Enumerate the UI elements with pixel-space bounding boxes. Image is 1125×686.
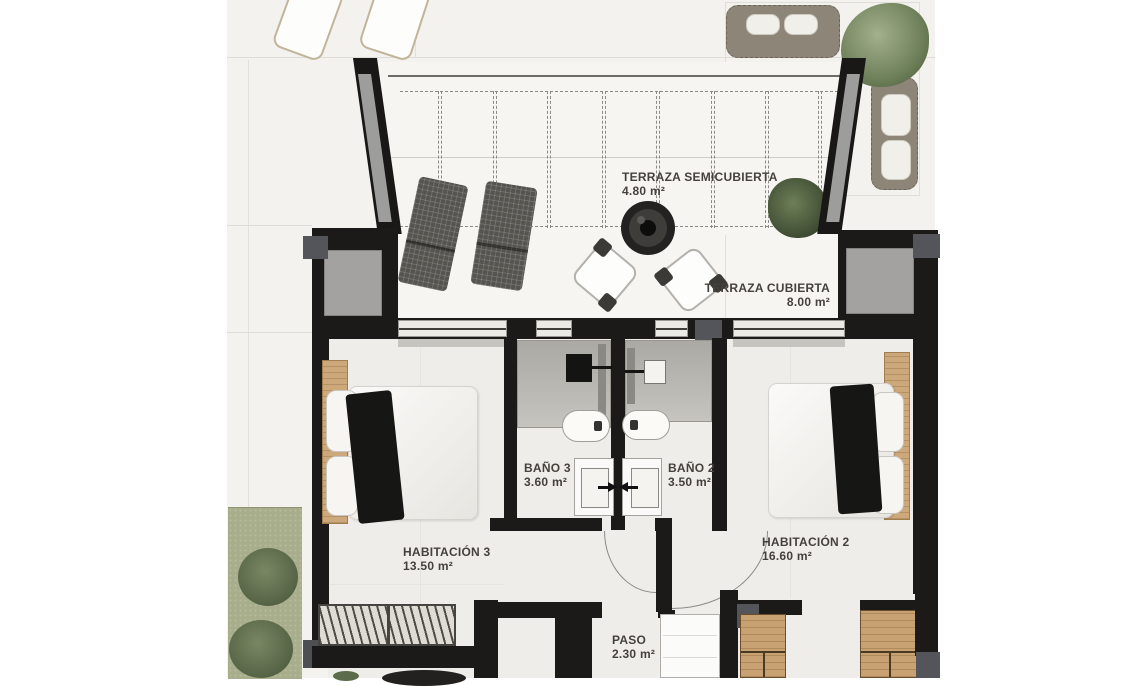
- room-name: HABITACIÓN 2: [762, 535, 849, 549]
- room-name: TERRAZA CUBIERTA: [700, 281, 830, 295]
- window-sill: [398, 339, 507, 347]
- shower-head: [566, 354, 592, 382]
- pergola-post-line: [547, 91, 551, 228]
- bush: [229, 620, 293, 678]
- pergola-beam: [390, 157, 842, 158]
- lounger-crease: [406, 239, 456, 252]
- room-label-paso: PASO 2.30 m²: [612, 633, 655, 661]
- tile-line: [227, 332, 312, 333]
- room-area: 2.30 m²: [612, 647, 655, 661]
- throw-blanket: [830, 384, 883, 515]
- room-area: 3.50 m²: [668, 475, 715, 489]
- bush: [238, 548, 298, 606]
- floorplan: TERRAZA SEMICUBIERTA 4.80 m² TERRAZA CUB…: [0, 0, 1125, 678]
- garden-sofa: [871, 77, 918, 190]
- room-label-terraza-cubierta: TERRAZA CUBIERTA 8.00 m²: [700, 281, 830, 309]
- washbasin: [622, 458, 662, 516]
- room-area: 3.60 m²: [524, 475, 571, 489]
- room-area: 13.50 m²: [403, 559, 490, 573]
- closet: [740, 614, 786, 678]
- room-name: PASO: [612, 633, 655, 647]
- room-area: 8.00 m²: [700, 295, 830, 309]
- room-area: 4.80 m²: [622, 184, 778, 198]
- shower-head: [644, 360, 666, 384]
- wall: [656, 518, 672, 612]
- room-label-bano2: BAÑO 2 3.50 m²: [668, 461, 715, 489]
- floorplan-page: { "rooms": [ {"name": "TERRAZA SEMICUBIE…: [0, 0, 1125, 678]
- sofa-cushion: [784, 14, 818, 35]
- pillar: [913, 234, 940, 258]
- room-name: BAÑO 2: [668, 461, 715, 475]
- closet: [860, 610, 917, 678]
- shaft: [324, 250, 382, 316]
- garden-sofa: [726, 5, 840, 58]
- pergola-dashed-line: [400, 91, 838, 92]
- fire-table-glint: [637, 216, 645, 224]
- window-glass-line: [734, 328, 844, 330]
- lounger-crease: [476, 242, 528, 253]
- shaft: [846, 248, 914, 314]
- wall: [490, 518, 602, 531]
- wall: [312, 646, 484, 668]
- faucet-arrow: [619, 482, 628, 492]
- panel-line: [663, 635, 717, 636]
- closet-divider: [763, 653, 765, 677]
- cutoff-plant: [333, 671, 359, 681]
- room-label-terraza-semicubierta: TERRAZA SEMICUBIERTA 4.80 m²: [622, 170, 778, 198]
- sliding-door-window: [398, 320, 507, 337]
- panel-line: [663, 657, 717, 658]
- tile-line: [248, 60, 249, 507]
- toilet-flush: [630, 420, 638, 430]
- pergola-dashed-line: [400, 226, 838, 227]
- pillar: [916, 652, 940, 678]
- sofa-cushion: [881, 140, 911, 180]
- toilet-flush: [594, 421, 602, 431]
- window-glass-line: [399, 328, 506, 330]
- pergola-post-line: [711, 91, 715, 228]
- faucet-arrow: [608, 482, 617, 492]
- shower-glass: [627, 348, 635, 404]
- pergola-beam: [388, 75, 843, 77]
- washbasin: [574, 458, 614, 516]
- sofa-cushion: [881, 94, 911, 136]
- window-glass-line: [537, 328, 571, 330]
- closet-divider: [889, 653, 891, 677]
- sofa-cushion: [746, 14, 780, 35]
- wardrobe-divider: [387, 606, 390, 644]
- toilet: [622, 410, 670, 440]
- bathroom-window: [655, 320, 688, 337]
- sliding-door-window: [733, 320, 845, 337]
- room-name: TERRAZA SEMICUBIERTA: [622, 170, 778, 184]
- wall: [712, 338, 727, 530]
- stair-panel: [660, 614, 720, 678]
- fire-table: [621, 201, 675, 255]
- wall: [712, 518, 727, 531]
- room-label-bano3: BAÑO 3 3.60 m²: [524, 461, 571, 489]
- pergola-post-line: [602, 91, 606, 228]
- window-glass-line: [656, 328, 687, 330]
- room-name: HABITACIÓN 3: [403, 545, 490, 559]
- wardrobe: [318, 604, 456, 646]
- wall: [555, 616, 592, 678]
- room-area: 16.60 m²: [762, 549, 849, 563]
- toilet: [562, 410, 610, 442]
- room-label-habitacion3: HABITACIÓN 3 13.50 m²: [403, 545, 490, 573]
- shower-arm: [590, 366, 612, 369]
- wall: [504, 338, 517, 530]
- wall: [915, 590, 938, 656]
- pillar: [303, 236, 328, 259]
- window-sill: [733, 339, 845, 347]
- wall: [913, 332, 938, 594]
- bathroom-window: [536, 320, 572, 337]
- room-name: BAÑO 3: [524, 461, 571, 475]
- tile-line: [330, 584, 504, 585]
- room-label-habitacion2: HABITACIÓN 2 16.60 m²: [762, 535, 849, 563]
- cutoff-furniture: [382, 670, 466, 686]
- tile-line: [227, 225, 312, 226]
